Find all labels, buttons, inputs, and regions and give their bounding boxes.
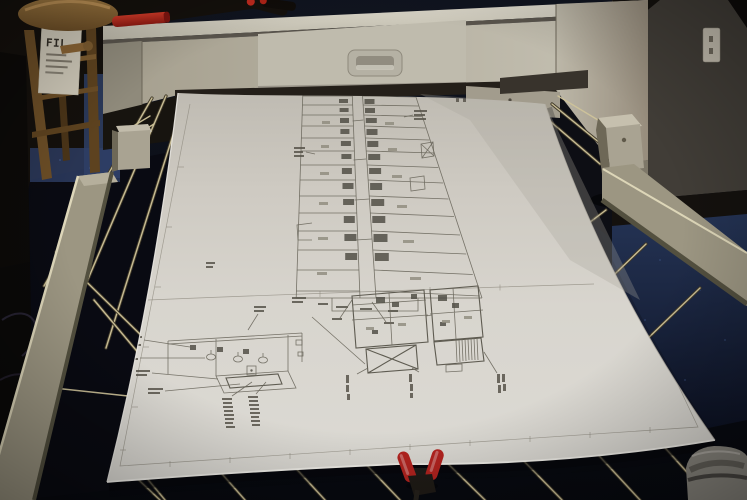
vignette-overlay — [0, 0, 747, 500]
photo-large-format-plotter-scene: FIL — [0, 0, 747, 500]
